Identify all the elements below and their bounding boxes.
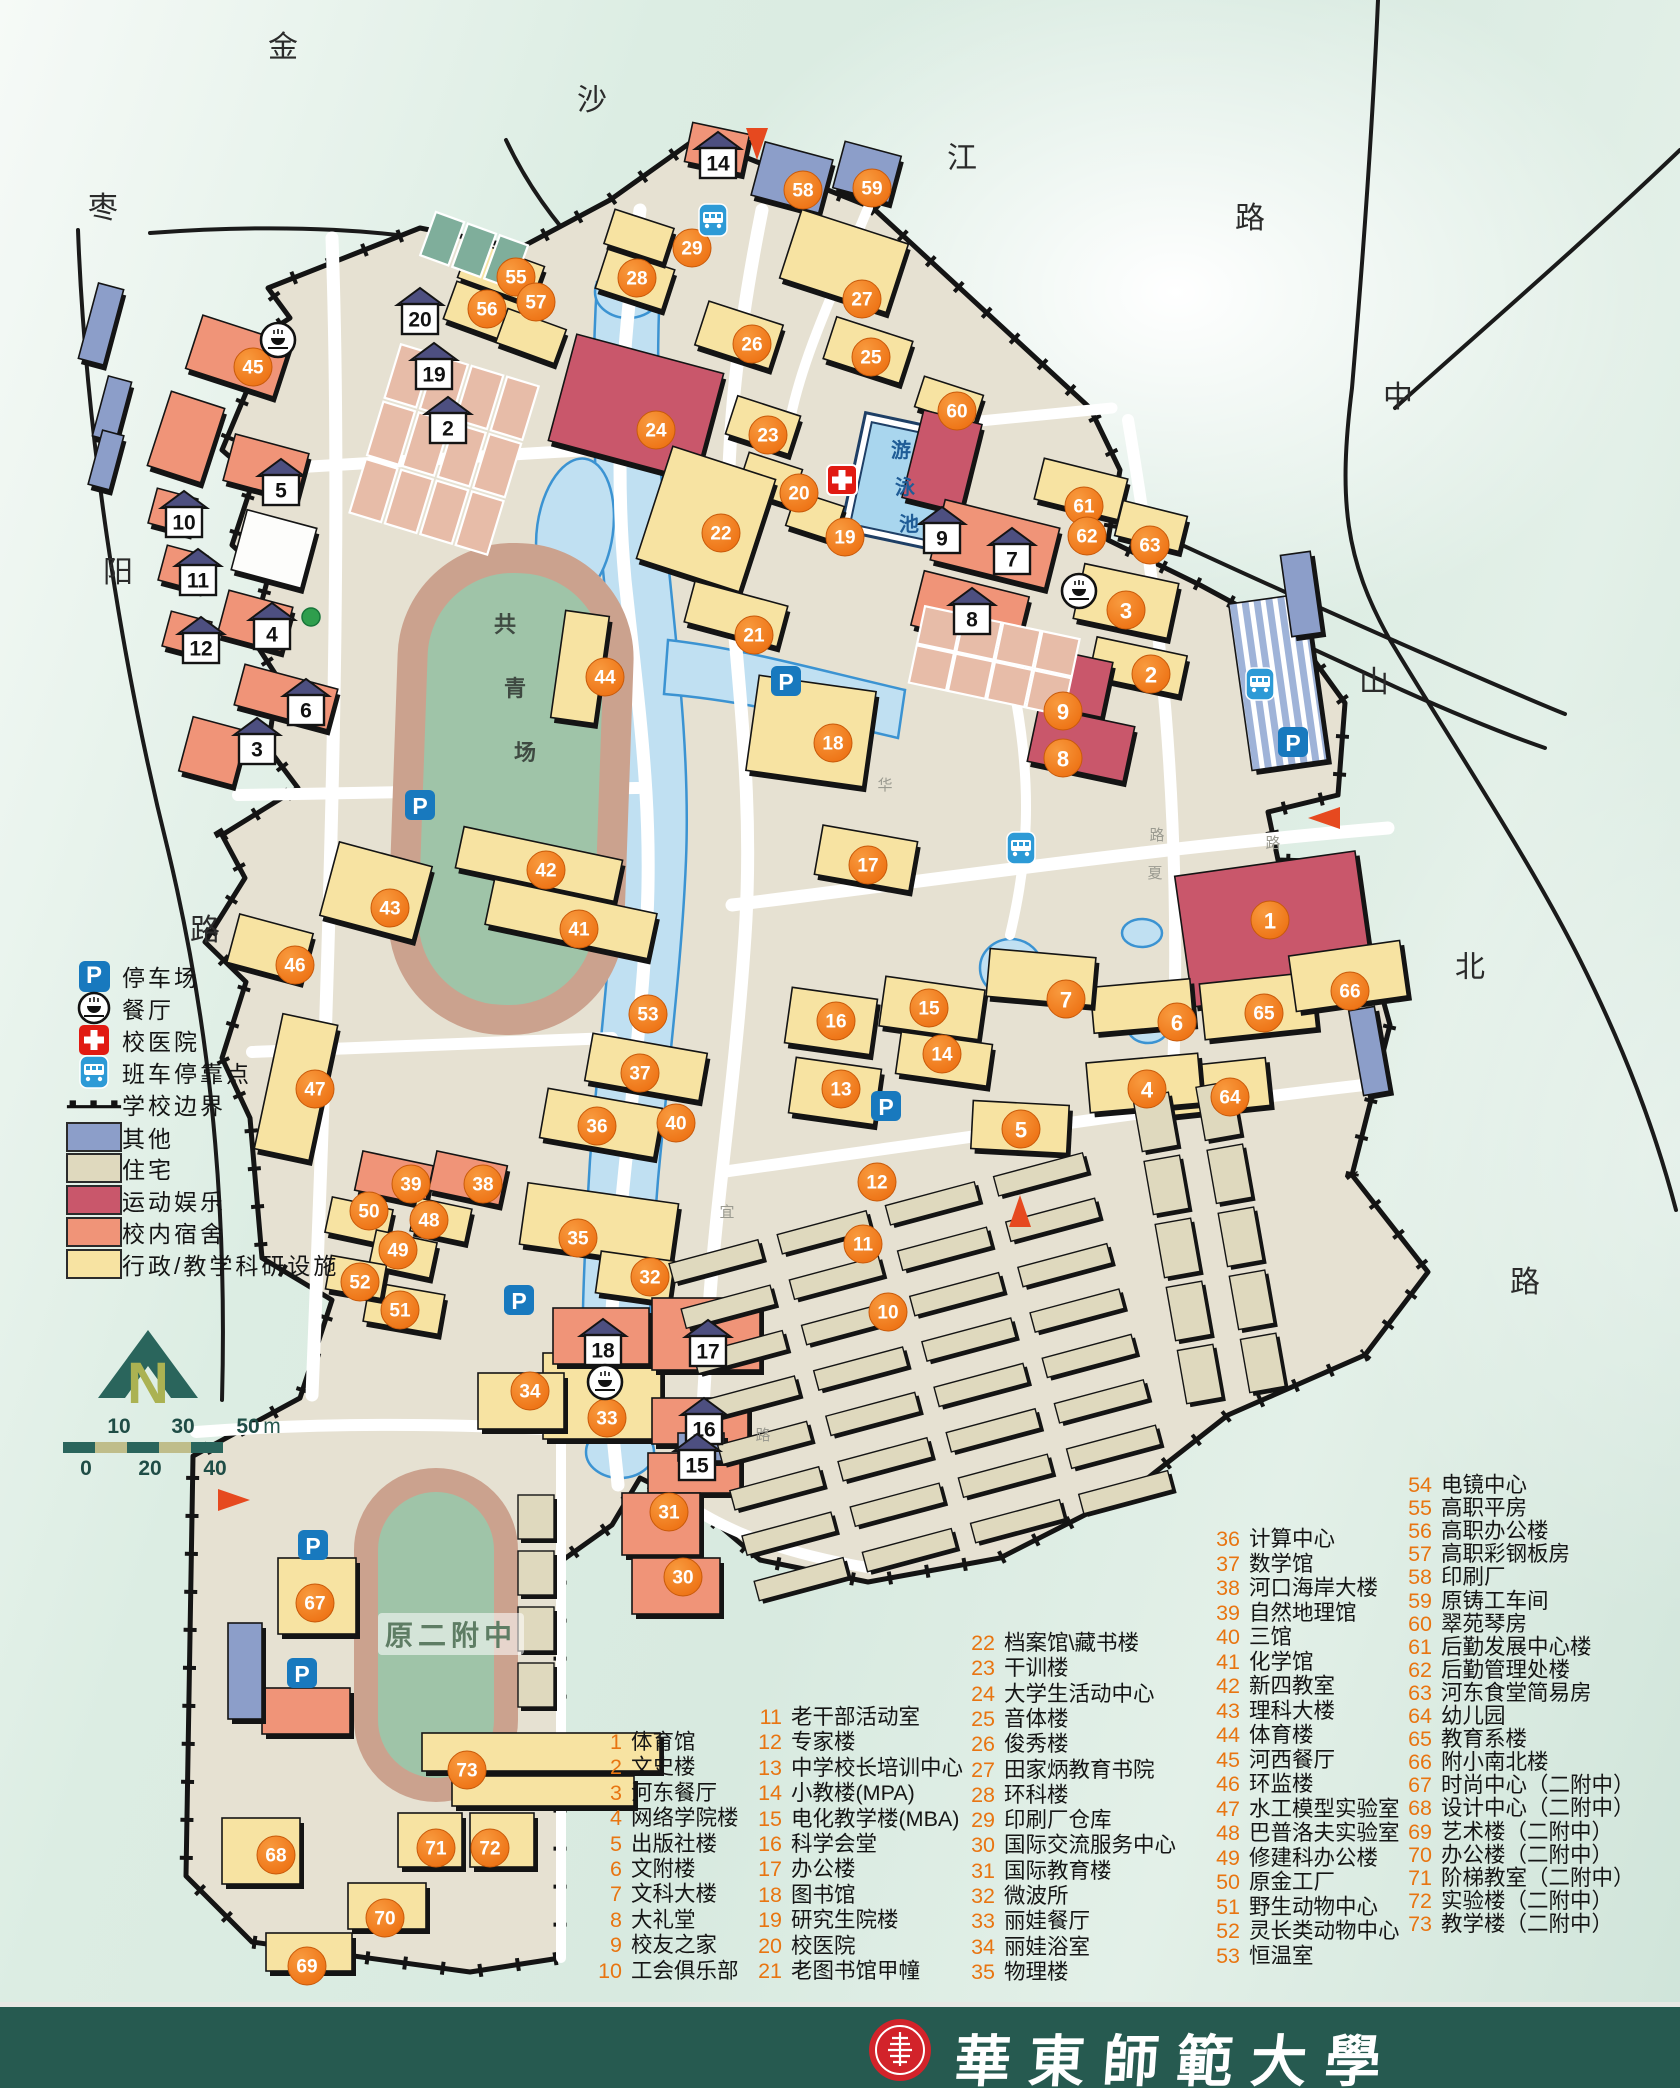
dining-marker: [1062, 574, 1096, 608]
legend-label: 行政/教学科研设施: [122, 1247, 339, 1281]
legend-row: 餐厅: [66, 991, 174, 1025]
svg-text:P: P: [778, 669, 793, 695]
svg-text:38: 38: [472, 1175, 493, 1196]
legend-label: 运动娱乐: [122, 1183, 226, 1217]
area-name-char: 青: [504, 676, 526, 701]
svg-text:69: 69: [296, 1957, 317, 1978]
list-building-name: 工会俱乐部: [631, 1959, 739, 1983]
svg-text:21: 21: [743, 626, 765, 647]
svg-text:18: 18: [591, 1340, 615, 1363]
scale-tick-label: 30: [171, 1415, 194, 1439]
building-number-marker-58: 58: [784, 171, 822, 209]
dining-marker: [588, 1365, 622, 1399]
list-number: 35: [965, 1960, 995, 1985]
svg-text:61: 61: [1073, 497, 1095, 518]
building-number-marker-67: 67: [296, 1584, 334, 1622]
svg-text:2: 2: [1145, 663, 1157, 688]
legend-label: 校医院: [122, 1023, 200, 1057]
svg-text:65: 65: [1253, 1004, 1275, 1025]
svg-text:46: 46: [284, 956, 305, 977]
road-name-char: 阳: [103, 556, 133, 589]
svg-text:27: 27: [851, 290, 872, 311]
building-number-marker-38: 38: [464, 1165, 502, 1203]
building-number-marker-10: 10: [869, 1293, 907, 1331]
building-number-marker-30: 30: [664, 1558, 702, 1596]
green-dot: [302, 608, 320, 626]
building-number-marker-71: 71: [417, 1829, 455, 1867]
road-name-char: 路: [190, 914, 220, 947]
building: [147, 391, 224, 482]
street-name-char: 路: [1265, 835, 1280, 852]
building-number-marker-35: 35: [559, 1219, 597, 1257]
list-building-name: 物理楼: [1004, 1960, 1069, 1984]
road-name-char: 中: [1383, 381, 1413, 414]
svg-text:2: 2: [442, 418, 454, 441]
svg-text:44: 44: [594, 668, 616, 689]
building-number-marker-51: 51: [381, 1291, 419, 1329]
building-number-marker-7: 7: [1047, 980, 1085, 1018]
list-number: 10: [592, 1959, 622, 1984]
svg-text:4: 4: [1141, 1078, 1154, 1103]
area-swatch: [66, 1217, 122, 1247]
building-number-marker-53: 53: [629, 995, 667, 1033]
svg-text:52: 52: [349, 1273, 370, 1294]
building-number-marker-17: 17: [849, 846, 887, 884]
svg-text:40: 40: [665, 1114, 686, 1135]
building-number-marker-5: 5: [1002, 1110, 1040, 1148]
building: [746, 675, 876, 786]
scale-segment: [63, 1442, 95, 1453]
svg-text:25: 25: [860, 348, 882, 369]
legend-row: 运动娱乐: [66, 1183, 226, 1217]
road-name-char: 路: [1235, 202, 1265, 235]
svg-text:3: 3: [1120, 599, 1132, 624]
building-number-marker-2: 2: [1132, 655, 1170, 693]
road-name-char: 枣: [88, 192, 118, 225]
svg-text:7: 7: [1060, 988, 1072, 1013]
svg-text:11: 11: [187, 570, 210, 593]
svg-text:35: 35: [567, 1229, 589, 1250]
building-number-marker-44: 44: [586, 658, 624, 696]
row-house: [518, 1495, 554, 1539]
svg-text:36: 36: [586, 1117, 607, 1138]
svg-text:10: 10: [877, 1303, 898, 1324]
svg-text:62: 62: [1076, 527, 1097, 548]
building-number-marker-15: 15: [910, 989, 948, 1027]
building-number-marker-3: 3: [1107, 591, 1145, 629]
svg-text:30: 30: [672, 1568, 693, 1589]
svg-text:5: 5: [1015, 1118, 1027, 1143]
building-number-marker-42: 42: [527, 851, 565, 889]
legend-label: 学校边界: [122, 1087, 226, 1121]
boundary-icon: [66, 1095, 122, 1113]
scale-tick-label: 0: [80, 1457, 92, 1481]
building-list-item-21: 21老图书馆甲幢: [752, 1954, 920, 1985]
svg-text:5: 5: [275, 480, 287, 503]
svg-text:P: P: [412, 793, 427, 819]
building-number-marker-14: 14: [923, 1035, 961, 1073]
scale-segment: [159, 1442, 191, 1453]
list-number: 73: [1402, 1912, 1432, 1937]
street-name-char: 宜: [719, 1204, 734, 1221]
svg-text:48: 48: [418, 1211, 439, 1232]
svg-text:59: 59: [861, 179, 882, 200]
basketball-court: [995, 623, 1040, 668]
legend-row: 其他: [66, 1120, 174, 1154]
parking-marker: P: [771, 666, 801, 696]
bus-stop-marker: [1007, 832, 1035, 864]
building-number-marker-6: 6: [1158, 1003, 1196, 1041]
svg-text:26: 26: [741, 335, 762, 356]
svg-text:13: 13: [830, 1080, 851, 1101]
svg-text:24: 24: [645, 421, 667, 442]
building-number-marker-48: 48: [410, 1201, 448, 1239]
hospital-marker: [827, 465, 857, 495]
svg-text:3: 3: [251, 739, 263, 762]
parking-marker: P: [1278, 727, 1308, 757]
building-number-marker-73: 73: [448, 1751, 486, 1789]
area-name-char: 池: [899, 513, 919, 536]
area-swatch: [66, 1185, 122, 1215]
scale-tick-label: 10: [107, 1415, 130, 1439]
road-name-char: 山: [1359, 666, 1389, 699]
svg-text:41: 41: [568, 920, 590, 941]
building-number-marker-34: 34: [511, 1372, 549, 1410]
building-number-marker-46: 46: [276, 946, 314, 984]
svg-text:72: 72: [479, 1839, 500, 1860]
basketball-court: [909, 645, 954, 690]
legend-label: 班车停靠点: [122, 1055, 252, 1089]
svg-text:57: 57: [525, 293, 546, 314]
scale-segment: [95, 1442, 127, 1453]
svg-text:73: 73: [456, 1761, 477, 1782]
campus-map-page: 5859292855565727262560242345201961626332…: [0, 0, 1680, 2088]
parking-marker: P: [871, 1091, 901, 1121]
row-house: [518, 1663, 554, 1707]
svg-text:50: 50: [358, 1202, 379, 1223]
svg-text:60: 60: [946, 402, 967, 423]
svg-text:64: 64: [1219, 1088, 1241, 1109]
legend-row: P停车场: [66, 959, 200, 993]
svg-text:12: 12: [866, 1173, 887, 1194]
svg-text:58: 58: [792, 181, 813, 202]
building-number-marker-36: 36: [578, 1107, 616, 1145]
svg-text:47: 47: [304, 1080, 325, 1101]
building-number-marker-31: 31: [650, 1493, 688, 1531]
svg-text:9: 9: [936, 528, 948, 551]
building-number-marker-56: 56: [468, 290, 506, 328]
svg-text:1: 1: [1264, 909, 1276, 934]
building-list-item-10: 10工会俱乐部: [592, 1954, 739, 1985]
street-name-char: 华: [877, 777, 892, 794]
svg-text:63: 63: [1139, 536, 1160, 557]
building-number-marker-39: 39: [392, 1165, 430, 1203]
parking-marker: P: [298, 1530, 328, 1560]
building-number-marker-11: 11: [844, 1225, 882, 1263]
svg-text:18: 18: [822, 734, 843, 755]
svg-text:11: 11: [853, 1235, 874, 1256]
building-number-marker-16: 16: [817, 1002, 855, 1040]
building-number-marker-32: 32: [631, 1258, 669, 1296]
building-number-marker-60: 60: [938, 392, 976, 430]
legend-row: 住宅: [66, 1151, 174, 1185]
scale-top-labels: 103050m: [40, 1415, 280, 1437]
building-number-marker-33: 33: [588, 1399, 626, 1437]
svg-text:8: 8: [966, 609, 978, 632]
svg-text:37: 37: [629, 1064, 650, 1085]
legend-row: 校医院: [66, 1023, 200, 1057]
svg-text:20: 20: [408, 309, 431, 332]
road-name-char: 江: [947, 142, 977, 175]
svg-text:14: 14: [931, 1045, 953, 1066]
building-number-marker-66: 66: [1331, 972, 1369, 1010]
building-number-marker-57: 57: [517, 283, 555, 321]
svg-text:66: 66: [1339, 982, 1360, 1003]
basketball-court: [987, 662, 1032, 707]
building-number-marker-20: 20: [780, 474, 818, 512]
svg-text:67: 67: [304, 1594, 325, 1615]
svg-text:15: 15: [685, 1455, 709, 1478]
svg-text:68: 68: [265, 1846, 286, 1867]
legend-row: 学校边界: [66, 1087, 226, 1121]
building-number-marker-26: 26: [733, 325, 771, 363]
building-number-marker-28: 28: [618, 259, 656, 297]
svg-text:56: 56: [476, 300, 497, 321]
svg-text:15: 15: [918, 999, 940, 1020]
svg-text:7: 7: [1006, 549, 1018, 572]
svg-text:P: P: [294, 1661, 309, 1687]
building-number-marker-12: 12: [858, 1163, 896, 1201]
svg-text:55: 55: [505, 268, 527, 289]
building-list-item-35: 35物理楼: [965, 1955, 1069, 1986]
street-name-char: 路: [755, 1427, 770, 1444]
svg-text:70: 70: [374, 1909, 395, 1930]
city-road: [1395, 150, 1680, 408]
university-name-calligraphy: 華東師範大學: [952, 2017, 1402, 2088]
svg-text:34: 34: [519, 1382, 541, 1403]
svg-text:20: 20: [788, 484, 809, 505]
building-number-marker-40: 40: [657, 1104, 695, 1142]
scale-tick-label: 40: [203, 1457, 226, 1481]
scale-segment: [191, 1442, 223, 1453]
building-number-marker-47: 47: [296, 1070, 334, 1108]
scale-bar: 103050m 02040: [40, 1415, 280, 1485]
svg-text:17: 17: [696, 1341, 719, 1364]
svg-text:P: P: [1285, 730, 1300, 756]
building-list-item-73: 73教学楼（二附中）: [1402, 1907, 1613, 1938]
svg-text:9: 9: [1057, 700, 1069, 725]
building-number-marker-1: 1: [1251, 901, 1289, 939]
building: [262, 1688, 350, 1734]
building-number-marker-21: 21: [735, 616, 773, 654]
parking-marker: P: [287, 1658, 317, 1688]
road-name-char: 金: [268, 31, 298, 64]
svg-text:19: 19: [422, 364, 445, 387]
building-number-marker-22: 22: [702, 514, 740, 552]
scale-bottom-labels: 02040: [40, 1457, 280, 1479]
building-number-marker-23: 23: [749, 416, 787, 454]
legend-row: 班车停靠点: [66, 1055, 252, 1089]
svg-text:45: 45: [242, 358, 264, 379]
svg-text:29: 29: [681, 239, 702, 260]
dining-icon: [66, 990, 122, 1026]
dining-marker: [261, 323, 295, 357]
legend-label: 校内宿舍: [122, 1215, 226, 1249]
area-swatch: [66, 1249, 122, 1279]
building-number-marker-43: 43: [371, 889, 409, 927]
legend-label: 其他: [122, 1120, 174, 1154]
svg-text:16: 16: [825, 1012, 846, 1033]
road-name-char: 路: [1510, 1266, 1540, 1299]
area-name-char: 游: [891, 438, 911, 462]
bus-stop-marker: [1246, 668, 1274, 700]
building-number-marker-24: 24: [637, 411, 675, 449]
road-name-char: 北: [1455, 951, 1485, 984]
svg-text:51: 51: [389, 1301, 411, 1322]
svg-text:14: 14: [706, 153, 730, 176]
building-number-marker-49: 49: [379, 1231, 417, 1269]
svg-text:49: 49: [387, 1241, 408, 1262]
svg-text:6: 6: [1171, 1011, 1183, 1036]
list-building-name: 教学楼（二附中）: [1441, 1912, 1613, 1936]
svg-text:6: 6: [300, 700, 312, 723]
university-seal-logo: [866, 2016, 934, 2084]
svg-text:10: 10: [172, 512, 195, 535]
svg-text:53: 53: [637, 1005, 658, 1026]
building: [228, 1623, 262, 1719]
road-name-char: 沙: [577, 84, 607, 117]
building-number-marker-62: 62: [1068, 517, 1106, 555]
building-number-marker-63: 63: [1131, 526, 1169, 564]
building-number-marker-18: 18: [814, 724, 852, 762]
building-number-marker-52: 52: [341, 1263, 379, 1301]
svg-text:22: 22: [710, 524, 731, 545]
area-name-char: 泳: [895, 475, 916, 499]
compass-n-label: N: [78, 1350, 218, 1417]
svg-text:28: 28: [626, 269, 647, 290]
area-name-char: 场: [514, 740, 536, 765]
bus-stop-icon: [66, 1055, 122, 1089]
street-name-char: 路: [1149, 827, 1164, 844]
list-number: 21: [752, 1959, 782, 1984]
svg-text:32: 32: [639, 1268, 660, 1289]
legend-label: 住宅: [122, 1151, 174, 1185]
legend-label: 停车场: [122, 959, 200, 993]
legend-label: 餐厅: [122, 991, 174, 1025]
scale-tick-label: 50: [236, 1415, 259, 1439]
legend-row: 校内宿舍: [66, 1215, 226, 1249]
building-number-marker-8: 8: [1044, 739, 1082, 777]
svg-text:8: 8: [1057, 747, 1069, 772]
parking-marker: P: [504, 1285, 534, 1315]
building-number-marker-68: 68: [257, 1836, 295, 1874]
legend-row: 行政/教学科研设施: [66, 1247, 339, 1281]
svg-text:17: 17: [857, 856, 878, 877]
building-number-marker-50: 50: [350, 1192, 388, 1230]
building-number-marker-13: 13: [822, 1070, 860, 1108]
building-number-marker-27: 27: [843, 280, 881, 318]
svg-text:71: 71: [425, 1839, 447, 1860]
list-number: 53: [1210, 1944, 1240, 1969]
area-swatch: [66, 1153, 122, 1183]
building-number-marker-9: 9: [1044, 692, 1082, 730]
building-number-marker-69: 69: [288, 1947, 326, 1985]
bottom-banner: 華東師範大學: [0, 2002, 1680, 2088]
svg-text:33: 33: [596, 1409, 617, 1430]
svg-text:23: 23: [757, 426, 778, 447]
svg-text:12: 12: [189, 638, 212, 661]
scale-unit: m: [263, 1415, 281, 1439]
building-number-marker-19: 19: [826, 518, 864, 556]
building-number-marker-4: 4: [1128, 1070, 1166, 1108]
pond: [1122, 919, 1162, 947]
building-number-marker-72: 72: [471, 1829, 509, 1867]
basketball-court: [1035, 631, 1080, 676]
building-number-marker-65: 65: [1245, 994, 1283, 1032]
list-building-name: 老图书馆甲幢: [791, 1959, 920, 1983]
scale-segment: [127, 1442, 159, 1453]
parking-icon: P: [66, 961, 122, 992]
basketball-court: [948, 654, 993, 699]
former-no2-school-label: 原二附中: [378, 1613, 524, 1655]
svg-text:4: 4: [266, 624, 278, 647]
row-house: [518, 1551, 554, 1595]
svg-text:39: 39: [400, 1175, 421, 1196]
hospital-icon: [66, 1025, 122, 1055]
building-number-marker-37: 37: [621, 1054, 659, 1092]
parking-marker: P: [405, 790, 435, 820]
scale-tick-label: 20: [138, 1457, 161, 1481]
area-swatch: [66, 1122, 122, 1152]
building-list-item-53: 53恒温室: [1210, 1939, 1314, 1970]
svg-text:42: 42: [535, 861, 556, 882]
street-name-char: 夏: [1147, 865, 1162, 882]
svg-text:P: P: [878, 1094, 893, 1120]
building-number-marker-59: 59: [853, 169, 891, 207]
svg-text:19: 19: [834, 528, 855, 549]
gate-flag-icon: [1308, 807, 1340, 829]
area-name-char: 共: [494, 612, 516, 637]
building-number-marker-41: 41: [560, 910, 598, 948]
svg-text:31: 31: [658, 1503, 680, 1524]
scale-segments: [63, 1442, 223, 1453]
svg-text:P: P: [305, 1533, 320, 1559]
building-number-marker-25: 25: [852, 338, 890, 376]
svg-text:P: P: [511, 1288, 526, 1314]
building-number-marker-64: 64: [1211, 1078, 1249, 1116]
svg-text:43: 43: [379, 899, 400, 920]
bus-stop-marker: [699, 204, 727, 236]
building-number-marker-70: 70: [366, 1899, 404, 1937]
list-building-name: 恒温室: [1249, 1944, 1314, 1968]
